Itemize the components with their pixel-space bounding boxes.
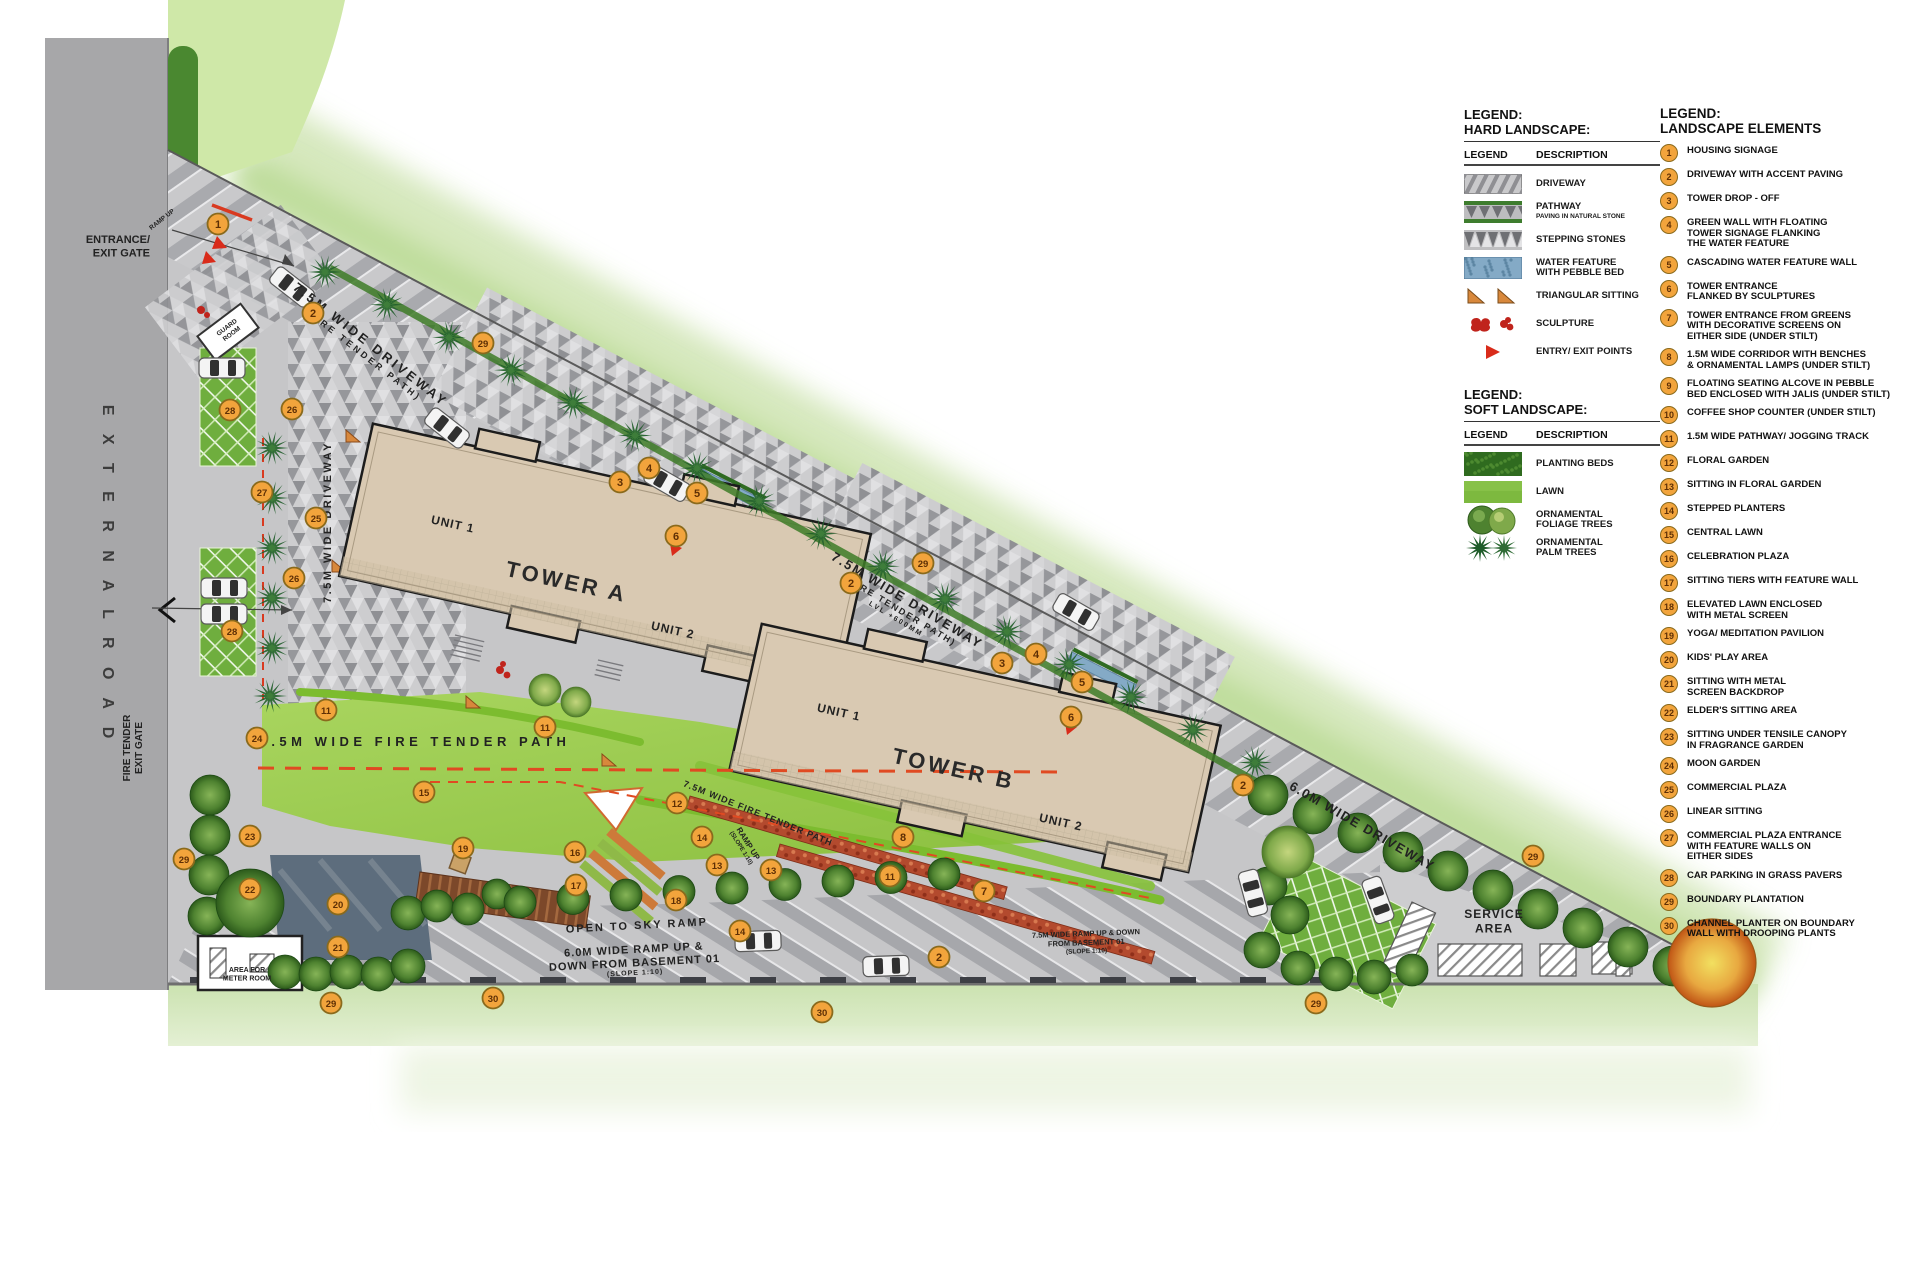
svg-text:4: 4 <box>1033 649 1040 661</box>
swatch-pathway <box>1464 202 1522 222</box>
svg-text:28: 28 <box>225 406 236 417</box>
site-plan-page: E X T E R N A L R O A DENTRANCE/EXIT GAT… <box>0 0 1919 1280</box>
legend-soft-title: LEGEND:SOFT LANDSCAPE: <box>1464 388 1660 422</box>
svg-text:3: 3 <box>617 477 623 489</box>
landscape-element-marker-14: 14 <box>730 921 751 942</box>
plan-label-meter-room: AREA FORMETER ROOM <box>223 967 271 983</box>
landscape-element-marker-26: 26 <box>284 568 305 589</box>
svg-text:22: 22 <box>245 885 256 896</box>
swatch-driveway <box>1464 174 1522 194</box>
foliage-tree <box>1262 826 1314 878</box>
legend-soft-row-lawn: LAWN <box>1464 482 1679 502</box>
element-number-badge: 4 <box>1660 216 1678 234</box>
car <box>201 604 247 624</box>
svg-text:11: 11 <box>540 723 551 734</box>
landscape-element-marker-29: 29 <box>473 333 494 354</box>
landscape-element-item-21: 21SITTING WITH METALSCREEN BACKDROP <box>1660 675 1916 698</box>
svg-text:6: 6 <box>673 531 679 543</box>
legend-hard-label: PATHWAYPAVING IN NATURAL STONE <box>1536 202 1625 222</box>
landscape-element-item-27: 27COMMERCIAL PLAZA ENTRANCEWITH FEATURE … <box>1660 829 1916 863</box>
landscape-element-item-12: 12FLORAL GARDEN <box>1660 454 1916 472</box>
legend-hard-label: SCULPTURE <box>1536 319 1594 329</box>
foliage-tree <box>610 879 642 911</box>
svg-text:29: 29 <box>1311 999 1322 1010</box>
svg-text:11: 11 <box>885 872 896 883</box>
element-label: GREEN WALL WITH FLOATINGTOWER SIGNAGE FL… <box>1687 216 1828 250</box>
plan-label-fire-tender-path: 7.5M WIDE FIRE TENDER PATH <box>260 734 571 749</box>
legend-soft-label: PLANTING BEDS <box>1536 459 1614 469</box>
svg-text:30: 30 <box>488 994 499 1005</box>
element-number-badge: 26 <box>1660 805 1678 823</box>
landscape-element-item-13: 13SITTING IN FLORAL GARDEN <box>1660 478 1916 496</box>
car <box>199 358 245 378</box>
landscape-element-item-5: 5CASCADING WATER FEATURE WALL <box>1660 256 1916 274</box>
element-label: FLORAL GARDEN <box>1687 454 1769 467</box>
landscape-element-item-18: 18ELEVATED LAWN ENCLOSEDWITH METAL SCREE… <box>1660 598 1916 621</box>
landscape-element-item-16: 16CELEBRATION PLAZA <box>1660 550 1916 568</box>
element-number-badge: 11 <box>1660 430 1678 448</box>
element-number-badge: 23 <box>1660 728 1678 746</box>
legend-soft-row-foliage: ORNAMENTALFOLIAGE TREES <box>1464 510 1679 530</box>
landscape-element-marker-25: 25 <box>306 508 327 529</box>
foliage-tree <box>1357 960 1391 994</box>
element-label: FLOATING SEATING ALCOVE IN PEBBLEBED ENC… <box>1687 377 1890 400</box>
legend-elements-title: LEGEND:LANDSCAPE ELEMENTS <box>1660 106 1916 136</box>
element-label: MOON GARDEN <box>1687 757 1760 770</box>
element-number-badge: 7 <box>1660 309 1678 327</box>
legend-soft-label: ORNAMENTALPALM TREES <box>1536 538 1603 558</box>
element-label: SITTING WITH METALSCREEN BACKDROP <box>1687 675 1786 698</box>
foliage-tree <box>190 775 230 815</box>
svg-text:4: 4 <box>646 463 653 475</box>
landscape-element-item-25: 25COMMERCIAL PLAZA <box>1660 781 1916 799</box>
swatch-entry <box>1464 342 1522 362</box>
svg-text:3: 3 <box>999 658 1005 670</box>
swatch-lawn <box>1464 482 1522 502</box>
svg-text:23: 23 <box>245 832 256 843</box>
landscape-element-marker-29: 29 <box>1523 846 1544 867</box>
landscape-element-marker-22: 22 <box>240 879 261 900</box>
element-label: ELEVATED LAWN ENCLOSEDWITH METAL SCREEN <box>1687 598 1822 621</box>
landscape-element-marker-24: 24 <box>247 728 268 749</box>
element-number-badge: 27 <box>1660 829 1678 847</box>
foliage-tree <box>529 674 561 706</box>
foliage-tree <box>928 858 960 890</box>
svg-text:29: 29 <box>918 559 929 570</box>
element-label: SITTING TIERS WITH FEATURE WALL <box>1687 574 1858 587</box>
foliage-tree <box>268 955 302 989</box>
landscape-element-marker-12: 12 <box>667 793 688 814</box>
element-number-badge: 6 <box>1660 280 1678 298</box>
element-label: BOUNDARY PLANTATION <box>1687 893 1804 906</box>
foliage-tree <box>504 886 536 918</box>
landscape-element-marker-26: 26 <box>282 399 303 420</box>
element-label: 1.5M WIDE PATHWAY/ JOGGING TRACK <box>1687 430 1869 443</box>
landscape-element-item-6: 6TOWER ENTRANCEFLANKED BY SCULPTURES <box>1660 280 1916 303</box>
element-number-badge: 20 <box>1660 651 1678 669</box>
element-label: CHANNEL PLANTER ON BOUNDARYWALL WITH DRO… <box>1687 917 1855 940</box>
legend-col-header: LEGEND <box>1464 149 1536 161</box>
landscape-element-marker-27: 27 <box>252 482 273 503</box>
landscape-element-marker-4: 4 <box>1026 644 1047 665</box>
landscape-element-item-30: 30CHANNEL PLANTER ON BOUNDARYWALL WITH D… <box>1660 917 1916 940</box>
foliage-tree <box>391 949 425 983</box>
legend-hard-label: STEPPING STONES <box>1536 235 1626 245</box>
foliage-tree <box>452 893 484 925</box>
foliage-tree <box>561 687 591 717</box>
foliage-tree <box>1518 889 1558 929</box>
landscape-element-item-24: 24MOON GARDEN <box>1660 757 1916 775</box>
landscape-element-item-14: 14STEPPED PLANTERS <box>1660 502 1916 520</box>
element-number-badge: 28 <box>1660 869 1678 887</box>
landscape-element-marker-30: 30 <box>812 1002 833 1023</box>
landscape-element-marker-16: 16 <box>565 842 586 863</box>
svg-text:28: 28 <box>227 627 238 638</box>
legend-soft-row-planting: PLANTING BEDS <box>1464 454 1679 474</box>
legend-hard-label: TRIANGULAR SITTING <box>1536 291 1639 301</box>
landscape-element-marker-29: 29 <box>913 553 934 574</box>
svg-text:15: 15 <box>419 788 430 799</box>
foliage-tree <box>1244 932 1280 968</box>
landscape-element-marker-30: 30 <box>483 988 504 1009</box>
landscape-element-item-19: 19YOGA/ MEDITATION PAVILION <box>1660 627 1916 645</box>
element-number-badge: 12 <box>1660 454 1678 472</box>
element-number-badge: 30 <box>1660 917 1678 935</box>
element-number-badge: 19 <box>1660 627 1678 645</box>
landscape-element-marker-13: 13 <box>761 860 782 881</box>
foliage-tree <box>361 957 395 991</box>
legend-soft-label: LAWN <box>1536 487 1564 497</box>
legend-hard-row-stepping: STEPPING STONES <box>1464 230 1679 250</box>
swatch-stepping <box>1464 230 1522 250</box>
foliage-tree <box>822 865 854 897</box>
legend-hard-row-entry: ENTRY/ EXIT POINTS <box>1464 342 1679 362</box>
svg-text:29: 29 <box>179 855 190 866</box>
legend-hard-row-triangular: TRIANGULAR SITTING <box>1464 286 1679 306</box>
legend-soft-label: ORNAMENTALFOLIAGE TREES <box>1536 510 1613 530</box>
legend-hard-row-sculpture: SCULPTURE <box>1464 314 1679 334</box>
landscape-element-item-23: 23SITTING UNDER TENSILE CANOPYIN FRAGRAN… <box>1660 728 1916 751</box>
landscape-element-marker-29: 29 <box>1306 993 1327 1014</box>
element-label: CASCADING WATER FEATURE WALL <box>1687 256 1857 269</box>
legend-hard-row-pathway: PATHWAYPAVING IN NATURAL STONE <box>1464 202 1679 222</box>
foliage-tree <box>330 955 364 989</box>
landscape-element-marker-5: 5 <box>1072 672 1093 693</box>
element-label: TOWER DROP - OFF <box>1687 192 1780 205</box>
svg-text:13: 13 <box>766 866 777 877</box>
landscape-element-marker-19: 19 <box>453 838 474 859</box>
landscape-element-marker-1: 1 <box>208 214 229 235</box>
landscape-element-marker-6: 6 <box>666 526 687 547</box>
element-number-badge: 14 <box>1660 502 1678 520</box>
landscape-element-item-2: 2DRIVEWAY WITH ACCENT PAVING <box>1660 168 1916 186</box>
svg-text:2: 2 <box>310 308 316 320</box>
landscape-element-marker-6: 6 <box>1061 707 1082 728</box>
landscape-element-item-29: 29BOUNDARY PLANTATION <box>1660 893 1916 911</box>
element-label: TOWER ENTRANCEFLANKED BY SCULPTURES <box>1687 280 1815 303</box>
svg-text:14: 14 <box>735 927 746 938</box>
legend-hard-label: DRIVEWAY <box>1536 179 1586 189</box>
element-label: LINEAR SITTING <box>1687 805 1762 818</box>
element-label: STEPPED PLANTERS <box>1687 502 1785 515</box>
foliage-tree <box>421 890 453 922</box>
svg-text:27: 27 <box>257 488 268 499</box>
foliage-tree <box>1248 775 1288 815</box>
element-label: CENTRAL LAWN <box>1687 526 1763 539</box>
landscape-element-item-22: 22ELDER'S SITTING AREA <box>1660 704 1916 722</box>
landscape-element-marker-17: 17 <box>566 875 587 896</box>
plan-label-fire-tender-exit-gate: FIRE TENDEREXIT GATE <box>122 714 145 781</box>
element-number-badge: 2 <box>1660 168 1678 186</box>
foliage-tree <box>299 957 333 991</box>
svg-text:25: 25 <box>311 514 322 525</box>
legend-hard-label: WATER FEATUREWITH PEBBLE BED <box>1536 258 1624 278</box>
element-label: 1.5M WIDE CORRIDOR WITH BENCHES& ORNAMEN… <box>1687 348 1870 371</box>
svg-text:29: 29 <box>326 999 337 1010</box>
element-label: HOUSING SIGNAGE <box>1687 144 1778 157</box>
landscape-element-marker-11: 11 <box>316 700 337 721</box>
svg-text:17: 17 <box>571 881 582 892</box>
element-number-badge: 9 <box>1660 377 1678 395</box>
landscape-element-item-7: 7TOWER ENTRANCE FROM GREENSWITH DECORATI… <box>1660 309 1916 343</box>
description-col-header: DESCRIPTION <box>1536 149 1608 161</box>
foliage-tree <box>1281 951 1315 985</box>
element-label: COMMERCIAL PLAZA ENTRANCEWITH FEATURE WA… <box>1687 829 1842 863</box>
svg-text:30: 30 <box>817 1008 828 1019</box>
foliage-tree <box>1319 957 1353 991</box>
landscape-element-marker-2: 2 <box>1233 775 1254 796</box>
foliage-tree <box>190 815 230 855</box>
landscape-element-marker-3: 3 <box>992 653 1013 674</box>
element-label: CELEBRATION PLAZA <box>1687 550 1789 563</box>
landscape-element-item-15: 15CENTRAL LAWN <box>1660 526 1916 544</box>
svg-text:29: 29 <box>478 339 489 350</box>
svg-text:11: 11 <box>321 706 332 717</box>
foliage-tree <box>716 872 748 904</box>
landscape-element-marker-28: 28 <box>222 621 243 642</box>
landscape-element-marker-7: 7 <box>974 881 995 902</box>
svg-text:6: 6 <box>1068 712 1074 724</box>
svg-text:2: 2 <box>936 952 942 964</box>
foliage-tree <box>1428 851 1468 891</box>
element-number-badge: 3 <box>1660 192 1678 210</box>
legend-hard-row-water: WATER FEATUREWITH PEBBLE BED <box>1464 258 1679 278</box>
element-label: TOWER ENTRANCE FROM GREENSWITH DECORATIV… <box>1687 309 1851 343</box>
element-number-badge: 5 <box>1660 256 1678 274</box>
landscape-element-marker-2: 2 <box>841 573 862 594</box>
plan-label-external-road: E X T E R N A L R O A D <box>99 405 116 746</box>
landscape-element-item-1: 1HOUSING SIGNAGE <box>1660 144 1916 162</box>
svg-text:29: 29 <box>1528 852 1539 863</box>
plan-label-entrance-exit-gate: ENTRANCE/EXIT GATE <box>86 234 150 259</box>
landscape-element-item-26: 26LINEAR SITTING <box>1660 805 1916 823</box>
element-label: SITTING IN FLORAL GARDEN <box>1687 478 1821 491</box>
landscape-element-item-28: 28CAR PARKING IN GRASS PAVERS <box>1660 869 1916 887</box>
landscape-element-item-4: 4GREEN WALL WITH FLOATINGTOWER SIGNAGE F… <box>1660 216 1916 250</box>
landscape-element-marker-5: 5 <box>687 483 708 504</box>
svg-text:18: 18 <box>671 896 682 907</box>
element-number-badge: 21 <box>1660 675 1678 693</box>
svg-text:12: 12 <box>672 799 683 810</box>
car <box>201 578 247 598</box>
element-label: COFFEE SHOP COUNTER (UNDER STILT) <box>1687 406 1876 419</box>
svg-text:20: 20 <box>333 900 344 911</box>
element-label: SITTING UNDER TENSILE CANOPYIN FRAGRANCE… <box>1687 728 1847 751</box>
svg-text:13: 13 <box>712 861 723 872</box>
landscape-element-marker-11: 11 <box>880 866 901 887</box>
landscape-element-marker-8: 8 <box>893 827 914 848</box>
landscape-element-marker-11: 11 <box>535 717 556 738</box>
element-label: DRIVEWAY WITH ACCENT PAVING <box>1687 168 1843 181</box>
foliage-tree <box>391 896 425 930</box>
legend-col-header: LEGEND <box>1464 429 1536 441</box>
foliage-tree <box>1563 908 1603 948</box>
element-number-badge: 10 <box>1660 406 1678 424</box>
element-number-badge: 18 <box>1660 598 1678 616</box>
svg-text:8: 8 <box>900 832 906 844</box>
element-number-badge: 24 <box>1660 757 1678 775</box>
svg-text:14: 14 <box>697 833 708 844</box>
swatch-water <box>1464 258 1522 278</box>
landscape-element-item-20: 20KIDS' PLAY AREA <box>1660 651 1916 669</box>
element-label: ELDER'S SITTING AREA <box>1687 704 1797 717</box>
svg-text:19: 19 <box>458 844 469 855</box>
element-number-badge: 8 <box>1660 348 1678 366</box>
legend-hard-row-driveway: DRIVEWAY <box>1464 174 1679 194</box>
swatch-triangular <box>1464 286 1522 306</box>
swatch-sculpture <box>1464 314 1522 334</box>
swatch-palm <box>1464 538 1522 558</box>
landscape-element-marker-29: 29 <box>321 993 342 1014</box>
landscape-element-marker-4: 4 <box>639 458 660 479</box>
landscape-element-marker-28: 28 <box>220 400 241 421</box>
car <box>863 955 910 977</box>
landscape-element-marker-18: 18 <box>666 890 687 911</box>
legend-soft-header: LEGEND DESCRIPTION <box>1464 429 1660 446</box>
legend-hard-header: LEGEND DESCRIPTION <box>1464 149 1660 166</box>
element-number-badge: 15 <box>1660 526 1678 544</box>
description-col-header: DESCRIPTION <box>1536 429 1608 441</box>
svg-text:24: 24 <box>252 734 263 745</box>
element-label: KIDS' PLAY AREA <box>1687 651 1768 664</box>
svg-text:5: 5 <box>1079 677 1085 689</box>
element-number-badge: 13 <box>1660 478 1678 496</box>
svg-text:16: 16 <box>570 848 581 859</box>
landscape-element-item-3: 3TOWER DROP - OFF <box>1660 192 1916 210</box>
element-label: YOGA/ MEDITATION PAVILION <box>1687 627 1824 640</box>
landscape-element-marker-21: 21 <box>328 937 349 958</box>
foliage-tree <box>1396 954 1428 986</box>
element-number-badge: 25 <box>1660 781 1678 799</box>
element-number-badge: 1 <box>1660 144 1678 162</box>
element-label: COMMERCIAL PLAZA <box>1687 781 1787 794</box>
element-number-badge: 17 <box>1660 574 1678 592</box>
foliage-tree <box>1473 870 1513 910</box>
legend-landscape-elements: LEGEND:LANDSCAPE ELEMENTS 1HOUSING SIGNA… <box>1660 106 1916 946</box>
svg-text:21: 21 <box>333 943 344 954</box>
landscape-element-item-10: 10COFFEE SHOP COUNTER (UNDER STILT) <box>1660 406 1916 424</box>
element-number-badge: 16 <box>1660 550 1678 568</box>
landscape-element-marker-20: 20 <box>328 894 349 915</box>
svg-text:2: 2 <box>1240 780 1246 792</box>
landscape-element-marker-29: 29 <box>174 849 195 870</box>
element-number-badge: 22 <box>1660 704 1678 722</box>
svg-text:5: 5 <box>694 488 700 500</box>
landscape-element-marker-15: 15 <box>414 782 435 803</box>
element-number-badge: 29 <box>1660 893 1678 911</box>
foliage-tree <box>1271 896 1309 934</box>
swatch-planting <box>1464 454 1522 474</box>
landscape-element-marker-23: 23 <box>240 826 261 847</box>
svg-text:1: 1 <box>215 219 221 231</box>
svg-text:26: 26 <box>289 574 300 585</box>
landscape-element-marker-3: 3 <box>610 472 631 493</box>
landscape-element-item-9: 9FLOATING SEATING ALCOVE IN PEBBLEBED EN… <box>1660 377 1916 400</box>
landscape-element-marker-14: 14 <box>692 827 713 848</box>
svg-text:26: 26 <box>287 405 298 416</box>
legend-hard-landscape: LEGEND:HARD LANDSCAPE: LEGEND DESCRIPTIO… <box>1464 108 1684 566</box>
svg-text:7: 7 <box>981 886 987 898</box>
landscape-element-marker-2: 2 <box>929 947 950 968</box>
legend-hard-title: LEGEND:HARD LANDSCAPE: <box>1464 108 1660 142</box>
landscape-element-marker-2: 2 <box>303 303 324 324</box>
landscape-element-item-8: 81.5M WIDE CORRIDOR WITH BENCHES& ORNAME… <box>1660 348 1916 371</box>
element-label: CAR PARKING IN GRASS PAVERS <box>1687 869 1842 882</box>
landscape-element-item-11: 111.5M WIDE PATHWAY/ JOGGING TRACK <box>1660 430 1916 448</box>
legend-soft-row-palm: ORNAMENTALPALM TREES <box>1464 538 1679 558</box>
foliage-tree <box>1608 927 1648 967</box>
landscape-element-item-17: 17SITTING TIERS WITH FEATURE WALL <box>1660 574 1916 592</box>
landscape-element-marker-13: 13 <box>707 855 728 876</box>
swatch-foliage <box>1464 510 1522 530</box>
svg-text:2: 2 <box>848 578 854 590</box>
legend-hard-label: ENTRY/ EXIT POINTS <box>1536 347 1632 357</box>
